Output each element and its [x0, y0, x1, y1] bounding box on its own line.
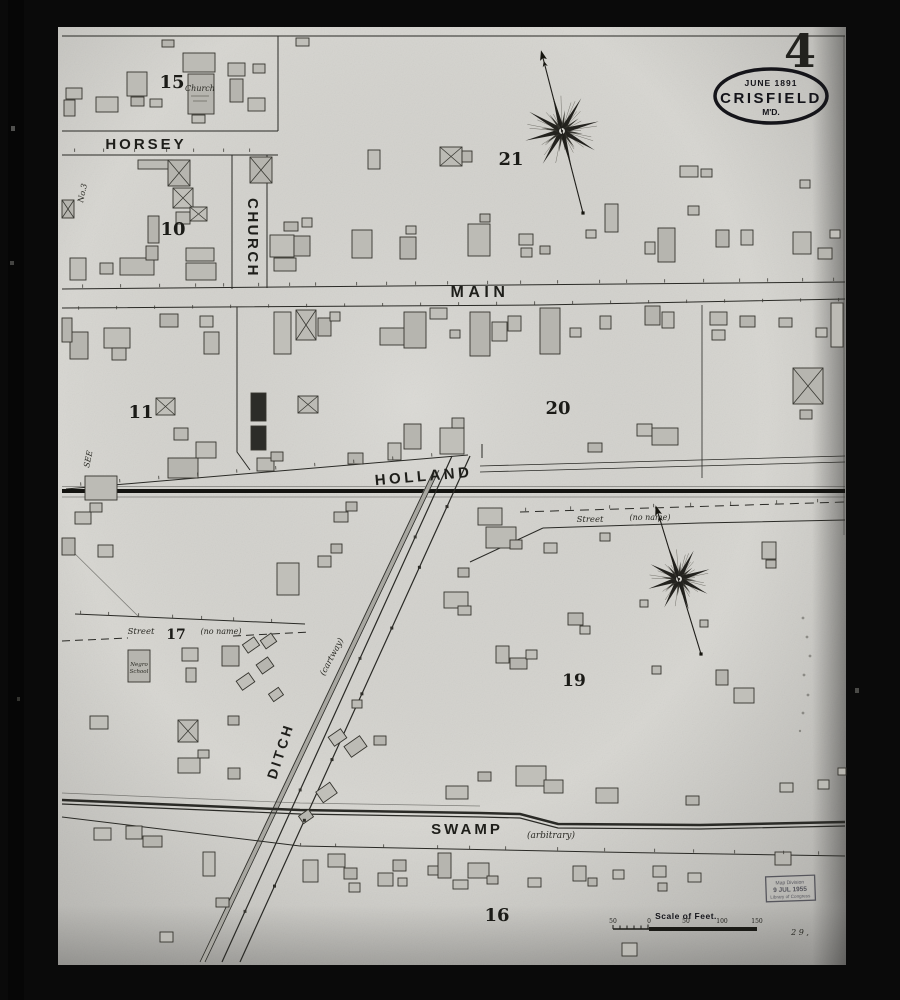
lot-tick: [335, 844, 336, 847]
lot-tick: [300, 843, 301, 846]
scale-tick-0: 0: [647, 918, 651, 925]
building: [85, 476, 117, 500]
lot-tick: [249, 149, 250, 152]
building: [378, 873, 393, 886]
block-number-17: 17: [166, 627, 185, 643]
building: [126, 826, 142, 839]
scale-tick-100: 100: [716, 918, 728, 925]
building: [516, 766, 546, 786]
building: [700, 620, 708, 627]
building: [487, 876, 498, 884]
building: [710, 312, 727, 325]
building: [480, 214, 490, 222]
building: [352, 700, 362, 708]
building: [450, 330, 460, 338]
building: [508, 316, 521, 331]
lot-tick: [195, 283, 196, 286]
building: [766, 560, 776, 568]
building: [303, 860, 318, 882]
building: [112, 348, 126, 360]
building: [458, 568, 469, 577]
building: [248, 98, 265, 111]
lot-tick: [233, 617, 234, 620]
building: [734, 688, 754, 703]
compass-south-mark: [581, 211, 584, 214]
building: [271, 452, 283, 461]
lot-tick: [762, 299, 763, 302]
building: [688, 873, 701, 882]
building: [198, 750, 209, 758]
scale-tick-50r: 50: [682, 918, 690, 925]
building: [458, 606, 471, 615]
building: [222, 646, 239, 666]
building: [780, 783, 793, 792]
building: [62, 200, 74, 218]
frame-speck: [17, 697, 20, 701]
building: [182, 648, 198, 661]
road-gate-mark: [331, 758, 334, 761]
building: [544, 780, 563, 793]
lot-tick: [520, 280, 521, 283]
building: [186, 263, 216, 280]
road-gate-mark: [414, 535, 417, 538]
lot-tick: [626, 280, 627, 283]
lot-tick: [108, 612, 109, 615]
building: [658, 883, 667, 891]
block-number-10: 10: [160, 219, 185, 240]
scale-tick-150: 150: [751, 918, 763, 925]
lot-tick: [447, 281, 448, 284]
building: [521, 248, 532, 257]
lot-tick: [116, 306, 117, 309]
building: [168, 458, 198, 478]
building: [510, 658, 527, 669]
lot-tick: [609, 505, 610, 508]
building: [251, 426, 266, 450]
building: [438, 853, 451, 878]
building: [404, 424, 421, 449]
street-main: MAIN: [451, 284, 510, 301]
building: [344, 868, 357, 879]
building: [544, 543, 557, 553]
lot-tick: [223, 149, 224, 152]
building: [274, 312, 291, 354]
frame-speck: [11, 126, 15, 131]
building: [330, 312, 340, 321]
road-gate-mark: [360, 692, 363, 695]
building: [468, 224, 490, 256]
stamp-city: CRISFIELD: [720, 90, 822, 107]
lot-tick: [703, 279, 704, 282]
lot-tick: [74, 149, 75, 152]
lot-tick: [730, 502, 731, 505]
building: [296, 38, 309, 46]
block-number-15: 15: [159, 72, 184, 93]
building: [374, 736, 386, 745]
building: [793, 232, 811, 254]
building: [588, 878, 597, 886]
building: [440, 147, 462, 166]
building: [284, 222, 298, 231]
building: [62, 318, 72, 342]
lot-tick: [648, 300, 649, 303]
road-gate-mark: [244, 910, 247, 913]
block-number-20: 20: [545, 398, 570, 419]
lot-tick: [469, 846, 470, 849]
building: [816, 328, 827, 337]
lot-tick: [172, 615, 173, 618]
lot-tick: [230, 305, 231, 308]
building: [653, 866, 666, 877]
building: [393, 860, 406, 871]
building: [230, 79, 243, 102]
building: [75, 512, 91, 524]
lot-tick: [80, 611, 81, 614]
building: [380, 328, 405, 345]
lot-tick: [654, 849, 655, 852]
road-gate-mark: [303, 819, 306, 822]
building: [586, 230, 596, 238]
building: [274, 258, 296, 271]
lot-tick: [690, 503, 691, 506]
building: [294, 236, 310, 256]
lot-tick: [525, 508, 526, 511]
street-noname-right-paren: (no name): [630, 513, 671, 522]
building: [570, 328, 581, 337]
road-gate-mark: [418, 566, 421, 569]
building: [605, 204, 618, 232]
road-gate-mark: [299, 788, 302, 791]
lot-tick: [739, 279, 740, 282]
lot-tick: [159, 284, 160, 287]
building: [540, 246, 550, 254]
building: [652, 666, 661, 674]
lot-tick: [734, 850, 735, 853]
road-gate-mark: [390, 627, 393, 630]
building: [712, 330, 725, 340]
building: [174, 428, 188, 440]
building: [568, 613, 583, 625]
lot-tick: [817, 499, 818, 502]
lot-tick: [724, 299, 725, 302]
building: [160, 932, 173, 942]
building: [686, 796, 699, 805]
building: [716, 670, 728, 685]
negro-school-label-2: School: [130, 669, 149, 675]
stamp-date: June 1891: [745, 78, 798, 88]
building: [192, 115, 205, 123]
sanborn-map-sheet: 4 June 1891 CRISFIELD M'D. HORSEY CHURCH…: [0, 0, 900, 1000]
lot-tick: [534, 301, 535, 304]
building: [352, 230, 372, 258]
building: [173, 188, 193, 208]
building: [302, 218, 312, 227]
building: [70, 258, 86, 280]
lot-tick: [686, 300, 687, 303]
lot-tick: [120, 284, 121, 287]
building: [196, 442, 216, 458]
building: [510, 540, 522, 549]
building: [204, 332, 219, 354]
lot-tick: [599, 280, 600, 283]
building: [640, 600, 648, 607]
building: [160, 314, 178, 327]
building: [652, 428, 678, 445]
lot-tick: [664, 279, 665, 282]
building: [368, 150, 380, 169]
lot-tick: [437, 845, 438, 848]
building: [600, 533, 610, 541]
building: [453, 880, 468, 889]
building: [296, 310, 316, 340]
building: [190, 207, 207, 221]
building: [428, 866, 439, 875]
street-noname-right-label: Street: [577, 515, 604, 525]
building: [251, 393, 266, 421]
lot-tick: [802, 278, 803, 281]
building: [740, 316, 755, 327]
building: [430, 308, 447, 319]
building: [478, 772, 491, 781]
scale-tick-50l: 50: [609, 918, 617, 925]
building: [349, 883, 360, 892]
lot-tick: [268, 304, 269, 307]
building: [148, 216, 159, 243]
building: [143, 836, 162, 847]
street-horsey: HORSEY: [105, 136, 186, 153]
building: [406, 226, 416, 234]
block-number-19: 19: [562, 671, 586, 691]
building: [186, 668, 196, 682]
lot-tick: [356, 282, 357, 285]
building: [519, 234, 533, 245]
building: [178, 720, 198, 742]
building: [818, 780, 829, 789]
building: [298, 396, 318, 413]
lot-tick: [557, 847, 558, 850]
building: [348, 453, 363, 464]
building: [831, 303, 843, 347]
building: [331, 544, 342, 553]
lot-tick: [344, 303, 345, 306]
lot-tick: [604, 848, 605, 851]
building: [168, 160, 190, 186]
lot-tick: [838, 298, 839, 301]
building: [600, 316, 611, 329]
building: [228, 768, 240, 779]
lot-tick: [289, 283, 290, 286]
lot-tick: [306, 304, 307, 307]
building: [400, 237, 416, 259]
building: [156, 398, 175, 415]
building: [446, 786, 468, 799]
lot-tick: [78, 306, 79, 309]
lot-tick: [420, 303, 421, 306]
building: [741, 230, 753, 245]
lot-tick: [154, 305, 155, 308]
building: [100, 263, 113, 274]
lot-tick: [557, 280, 558, 283]
building: [188, 74, 214, 114]
pencil-note: 2 9 ,: [790, 928, 809, 937]
building: [96, 97, 118, 112]
building: [452, 418, 464, 428]
building: [688, 206, 699, 215]
building: [186, 248, 214, 261]
lot-tick: [776, 500, 777, 503]
building: [398, 878, 407, 886]
frame-speck: [855, 688, 859, 693]
building: [580, 626, 590, 634]
building: [701, 169, 712, 177]
lot-tick: [386, 282, 387, 285]
lot-tick: [505, 846, 506, 849]
building: [90, 503, 102, 512]
building: [470, 312, 490, 356]
building: [64, 100, 75, 116]
lot-tick: [315, 282, 316, 285]
building: [346, 502, 357, 511]
building: [127, 72, 147, 96]
lot-tick: [458, 302, 459, 305]
building: [716, 230, 729, 247]
road-gate-mark: [273, 885, 276, 888]
lot-tick: [382, 303, 383, 306]
building: [62, 538, 75, 555]
lot-tick: [783, 851, 784, 854]
building: [404, 312, 426, 348]
building: [120, 258, 154, 275]
building: [334, 512, 348, 522]
street-swamp: SWAMP: [431, 821, 503, 838]
building: [277, 563, 299, 595]
street-church: CHURCH: [244, 198, 261, 278]
building: [637, 424, 652, 436]
building: [478, 508, 502, 525]
building: [183, 53, 215, 72]
lot-tick: [767, 278, 768, 281]
lot-tick: [800, 298, 801, 301]
building: [200, 316, 213, 327]
lot-tick: [572, 301, 573, 304]
building: [178, 758, 200, 773]
church-building-label: Church: [185, 84, 215, 93]
building: [388, 443, 401, 460]
lot-tick: [201, 616, 202, 619]
road-gate-mark: [446, 505, 449, 508]
frame-strip: [8, 0, 24, 1000]
building: [98, 545, 113, 557]
building: [253, 64, 265, 73]
building: [528, 878, 541, 887]
title-stamp: June 1891 CRISFIELD M'D.: [715, 69, 827, 123]
building: [762, 542, 776, 559]
building: [613, 870, 624, 879]
lot-tick: [496, 302, 497, 305]
building: [138, 160, 172, 169]
building: [228, 63, 245, 76]
building: [66, 88, 82, 99]
building: [526, 650, 537, 659]
compass-south-mark: [699, 652, 702, 655]
building: [131, 97, 144, 106]
lot-tick: [415, 281, 416, 284]
building: [468, 863, 489, 878]
block-number-16: 16: [484, 905, 509, 926]
building: [440, 428, 464, 454]
frame-speck: [10, 261, 14, 265]
lot-tick: [693, 849, 694, 852]
building: [150, 99, 162, 107]
lot-tick: [258, 283, 259, 286]
lot-tick: [82, 284, 83, 287]
block-number-21: 21: [498, 149, 523, 170]
lot-tick: [192, 305, 193, 308]
building: [162, 40, 174, 47]
building: [838, 768, 846, 775]
building: [216, 898, 229, 907]
stamp-state: M'D.: [762, 107, 780, 117]
lot-tick: [610, 300, 611, 303]
building: [573, 866, 586, 881]
street-noname-left-label: Street: [128, 627, 155, 637]
building: [104, 328, 130, 348]
lot-tick: [383, 844, 384, 847]
building: [830, 230, 840, 238]
building: [818, 248, 832, 259]
building: [318, 318, 331, 336]
building: [588, 443, 602, 452]
block-number-11: 11: [128, 402, 153, 423]
building: [228, 716, 239, 725]
negro-school-label-1: Negro: [129, 662, 148, 668]
lot-tick: [570, 506, 571, 509]
building: [540, 308, 560, 354]
lot-tick: [193, 149, 194, 152]
building: [622, 943, 637, 956]
lot-tick: [103, 149, 104, 152]
building: [800, 410, 812, 419]
building: [328, 854, 345, 867]
building: [250, 157, 272, 183]
street-noname-left-paren: (no name): [201, 627, 242, 636]
building: [658, 228, 675, 262]
road-gate-mark: [359, 657, 362, 660]
building: [645, 242, 655, 254]
building: [596, 788, 618, 803]
building: [496, 646, 509, 663]
building: [800, 180, 810, 188]
building: [318, 556, 331, 567]
building: [492, 322, 507, 341]
lot-tick: [818, 851, 819, 854]
building: [146, 246, 158, 260]
lot-tick: [223, 283, 224, 286]
building: [94, 828, 111, 840]
lot-tick: [833, 278, 834, 281]
building: [462, 151, 472, 162]
building: [680, 166, 698, 177]
lot-tick: [138, 613, 139, 616]
lot-tick: [271, 619, 272, 622]
building: [203, 852, 215, 876]
building: [270, 235, 294, 257]
arbitrary-note: (arbitrary): [527, 830, 575, 841]
building: [90, 716, 108, 729]
building: [662, 312, 674, 328]
building: [793, 368, 823, 404]
building: [779, 318, 792, 327]
